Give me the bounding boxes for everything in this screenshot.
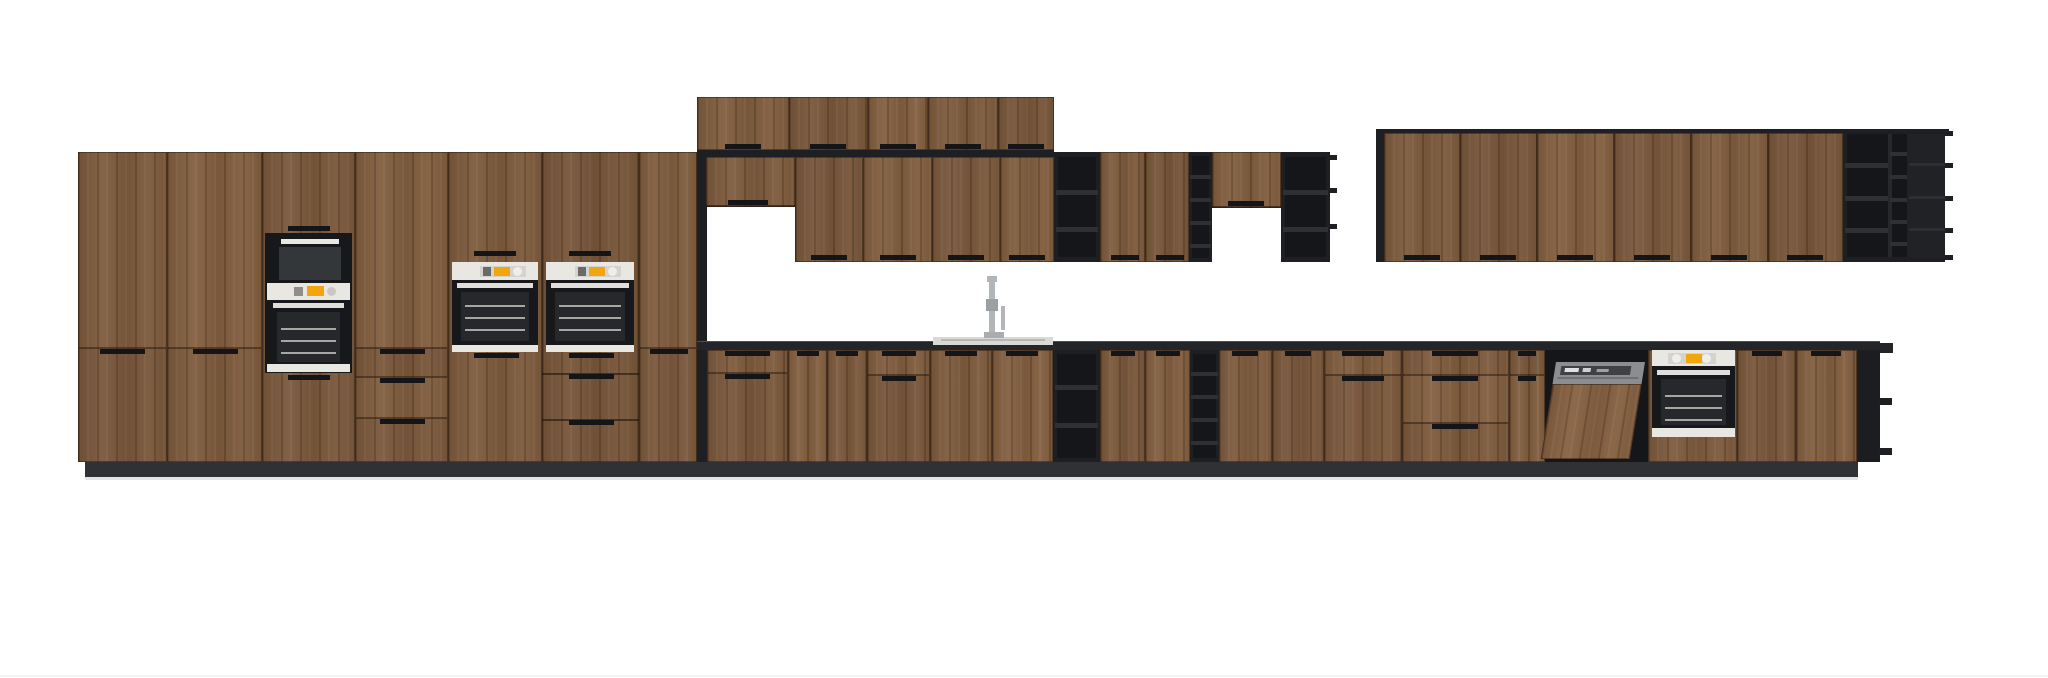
control-knob	[513, 267, 522, 276]
door-handle	[1811, 351, 1841, 356]
dishwasher-door-panel	[1541, 384, 1642, 459]
shelf-cavity	[1285, 157, 1326, 257]
wall-door[interactable]	[1145, 152, 1189, 262]
control-knob	[1702, 354, 1711, 363]
door-handle	[1232, 351, 1258, 356]
oven-door-handle	[273, 303, 344, 308]
tall-door[interactable]	[167, 152, 262, 348]
drawer-handle	[380, 419, 425, 424]
drawer-front[interactable]	[355, 377, 448, 418]
door-handle	[1480, 255, 1516, 260]
control-knob	[327, 287, 336, 296]
shelf-side-tab	[1878, 398, 1892, 405]
drawer-handle	[725, 351, 770, 356]
kitchen-scene	[0, 0, 2048, 678]
oven-door-handle	[551, 283, 629, 288]
door-handle	[1342, 376, 1384, 381]
door-handle	[725, 144, 761, 149]
oven-rack	[1665, 419, 1722, 421]
wall-door[interactable]	[1768, 133, 1843, 262]
sink-base-door[interactable]	[930, 350, 992, 462]
shelf-side-tab	[1945, 255, 1953, 260]
wall-side-panel	[697, 157, 706, 350]
countertop	[697, 341, 1880, 350]
base-door[interactable]	[707, 373, 788, 462]
oven-rack	[1665, 395, 1722, 397]
door-handle	[474, 251, 516, 256]
door-handle	[1009, 255, 1045, 260]
door-handle	[882, 376, 916, 381]
shelf-board	[1190, 198, 1211, 202]
shelf-side-tab	[1945, 196, 1953, 201]
shelf-cavity	[1058, 157, 1096, 257]
shelf-side-tab	[1330, 155, 1337, 160]
faucet-base	[984, 332, 1004, 338]
tall-door[interactable]	[639, 152, 697, 348]
tall-door[interactable]	[639, 348, 697, 462]
wall-door[interactable]	[1384, 133, 1460, 262]
door-handle	[880, 144, 916, 149]
drawer-handle	[1432, 424, 1478, 429]
wall-cabinet-frame	[697, 150, 1054, 157]
control-button	[483, 267, 491, 276]
base-door[interactable]	[1509, 375, 1545, 462]
drawer-handle	[569, 353, 614, 358]
door-handle	[1008, 144, 1044, 149]
faucet-lever	[1001, 306, 1005, 330]
wall-side-panel	[1376, 129, 1384, 262]
shelf-board	[1190, 175, 1211, 179]
door-handle	[288, 226, 330, 231]
door-handle	[836, 351, 858, 356]
wall-door[interactable]	[863, 157, 932, 262]
shelf-board	[1055, 385, 1098, 390]
shelf-side-tab	[1330, 224, 1337, 229]
oven-bottom-trim	[546, 345, 634, 352]
compact-oven-handle	[281, 239, 339, 244]
oven-bottom-trim	[452, 345, 538, 352]
door-handle	[945, 351, 977, 356]
base-door[interactable]	[1100, 350, 1145, 462]
oven-bottom-trim	[267, 364, 350, 372]
wall-top-door[interactable]	[697, 97, 789, 150]
drawer-handle	[1432, 376, 1478, 381]
base-door[interactable]	[1145, 350, 1190, 462]
wall-door[interactable]	[1100, 152, 1145, 262]
base-door[interactable]	[1324, 375, 1402, 462]
control-display	[494, 267, 510, 276]
shelf-board	[1191, 395, 1218, 399]
control-knob	[608, 267, 617, 276]
control-knob	[1672, 354, 1681, 363]
drawer-handle	[380, 378, 425, 383]
shelf-side-tab	[1878, 448, 1892, 455]
shelf-board	[1845, 196, 1890, 201]
door-handle	[1711, 255, 1747, 260]
door-handle	[1634, 255, 1670, 260]
control-button	[294, 287, 303, 296]
oven-rack	[281, 352, 336, 354]
oven-rack	[559, 305, 621, 307]
display-mark	[1596, 369, 1608, 372]
countertop-edge	[697, 341, 1880, 342]
wall-door[interactable]	[1460, 133, 1537, 262]
base-door[interactable]	[1737, 350, 1796, 462]
wall-top-door[interactable]	[928, 97, 998, 150]
door-handle	[810, 144, 846, 149]
control-display	[589, 267, 605, 276]
door-handle	[474, 353, 519, 358]
shelf-board	[1191, 372, 1218, 376]
drawer-handle	[380, 349, 425, 354]
oven-rack	[465, 317, 525, 319]
base-door[interactable]	[1796, 350, 1857, 462]
door-handle	[797, 351, 819, 356]
wall-top-door[interactable]	[998, 97, 1054, 150]
drawer-handle	[1518, 351, 1536, 356]
tall-door[interactable]	[167, 348, 262, 462]
shelf-board	[1055, 423, 1098, 428]
oven-rack	[559, 329, 621, 331]
door-handle	[650, 349, 688, 354]
compact-oven-glass	[279, 247, 341, 280]
shelf-side-tab	[1330, 188, 1337, 193]
display-mark	[1582, 368, 1591, 372]
shelf-board	[1845, 228, 1890, 233]
door-handle	[945, 144, 981, 149]
drawer-handle	[882, 351, 916, 356]
door-handle	[1156, 351, 1180, 356]
drawer-handle	[569, 420, 614, 425]
base-door[interactable]	[1219, 350, 1272, 462]
shelf-board	[1191, 441, 1218, 445]
shelf-board	[1190, 244, 1211, 248]
door-handle	[1111, 351, 1135, 356]
door-handle	[725, 374, 770, 379]
shelf-line	[1909, 163, 1945, 166]
wall-door[interactable]	[1614, 133, 1691, 262]
door-handle	[948, 255, 984, 260]
drawer-handle	[1432, 351, 1478, 356]
wall-door[interactable]	[1691, 133, 1768, 262]
base-drawer-front[interactable]	[1402, 375, 1509, 423]
shelf-board	[1283, 227, 1328, 232]
wall-door[interactable]	[795, 157, 863, 262]
wall-top-door[interactable]	[789, 97, 868, 150]
shelf-board	[1190, 221, 1211, 225]
door-groove	[1557, 377, 1638, 379]
seam-line	[1212, 206, 1281, 208]
shelf-line	[1909, 196, 1945, 199]
door-handle	[1111, 255, 1139, 260]
canvas-edge	[0, 675, 2048, 677]
base-end-panel	[1857, 350, 1880, 462]
wall-door[interactable]	[1537, 133, 1614, 262]
dishwasher-door[interactable]	[1541, 362, 1645, 459]
shelf-board	[1056, 227, 1098, 232]
oven-bottom-trim	[1652, 428, 1735, 437]
door-handle	[1006, 351, 1038, 356]
base-door[interactable]	[827, 350, 867, 462]
control-button	[578, 267, 586, 276]
tall-door[interactable]	[355, 152, 448, 348]
wall-door[interactable]	[1212, 152, 1281, 208]
shelf-board	[1283, 190, 1328, 195]
wall-door[interactable]	[1000, 157, 1054, 262]
toe-kick	[85, 461, 1858, 477]
sink-base-door[interactable]	[992, 350, 1053, 462]
door-handle	[1557, 255, 1593, 260]
oven-rack	[281, 328, 336, 330]
oven-door-handle	[1657, 370, 1730, 375]
oven-rack	[559, 317, 621, 319]
drawer-front[interactable]	[355, 418, 448, 462]
tall-door[interactable]	[78, 348, 167, 462]
shelf-side-tab	[1945, 228, 1953, 233]
seam-line	[706, 205, 795, 207]
door-handle	[1787, 255, 1823, 260]
drawer-handle	[569, 374, 614, 379]
shelf-side-tab	[1945, 163, 1953, 168]
door-handle	[288, 375, 330, 380]
door-handle	[1518, 376, 1536, 381]
toe-kick-shadow	[85, 477, 1858, 480]
door-handle	[1285, 351, 1311, 356]
wall-door[interactable]	[932, 157, 1000, 262]
shelf-line	[1909, 228, 1945, 231]
door-handle	[1404, 255, 1440, 260]
shelf-cavity	[1192, 156, 1209, 258]
faucet-joint	[986, 299, 998, 311]
door-handle	[1752, 351, 1782, 356]
tall-door[interactable]	[78, 152, 167, 348]
drawer-handle	[1342, 351, 1384, 356]
door-handle	[1156, 255, 1184, 260]
sink-inner-line	[941, 339, 1045, 341]
door-handle	[100, 349, 145, 354]
oven-rack	[465, 305, 525, 307]
shelf-board	[1845, 163, 1890, 168]
control-display	[1686, 354, 1702, 363]
door-handle	[811, 255, 847, 260]
countertop-overhang	[1880, 343, 1893, 353]
oven-glass	[277, 312, 340, 362]
base-door[interactable]	[1272, 350, 1324, 462]
door-handle	[193, 349, 238, 354]
base-door[interactable]	[788, 350, 827, 462]
oven-rack	[281, 340, 336, 342]
shelf-board	[1191, 418, 1218, 422]
oven-rack	[1665, 407, 1722, 409]
display-mark	[1564, 368, 1579, 372]
oven-rack	[465, 329, 525, 331]
shelf-cavity	[1057, 354, 1096, 458]
door-handle	[880, 255, 916, 260]
wall-top-door[interactable]	[868, 97, 928, 150]
shelf-board	[1056, 190, 1098, 195]
control-display	[307, 286, 324, 296]
oven-door-handle	[457, 283, 533, 288]
base-door[interactable]	[867, 375, 930, 462]
door-handle	[569, 251, 611, 256]
shelf-side-tab	[1945, 131, 1953, 136]
